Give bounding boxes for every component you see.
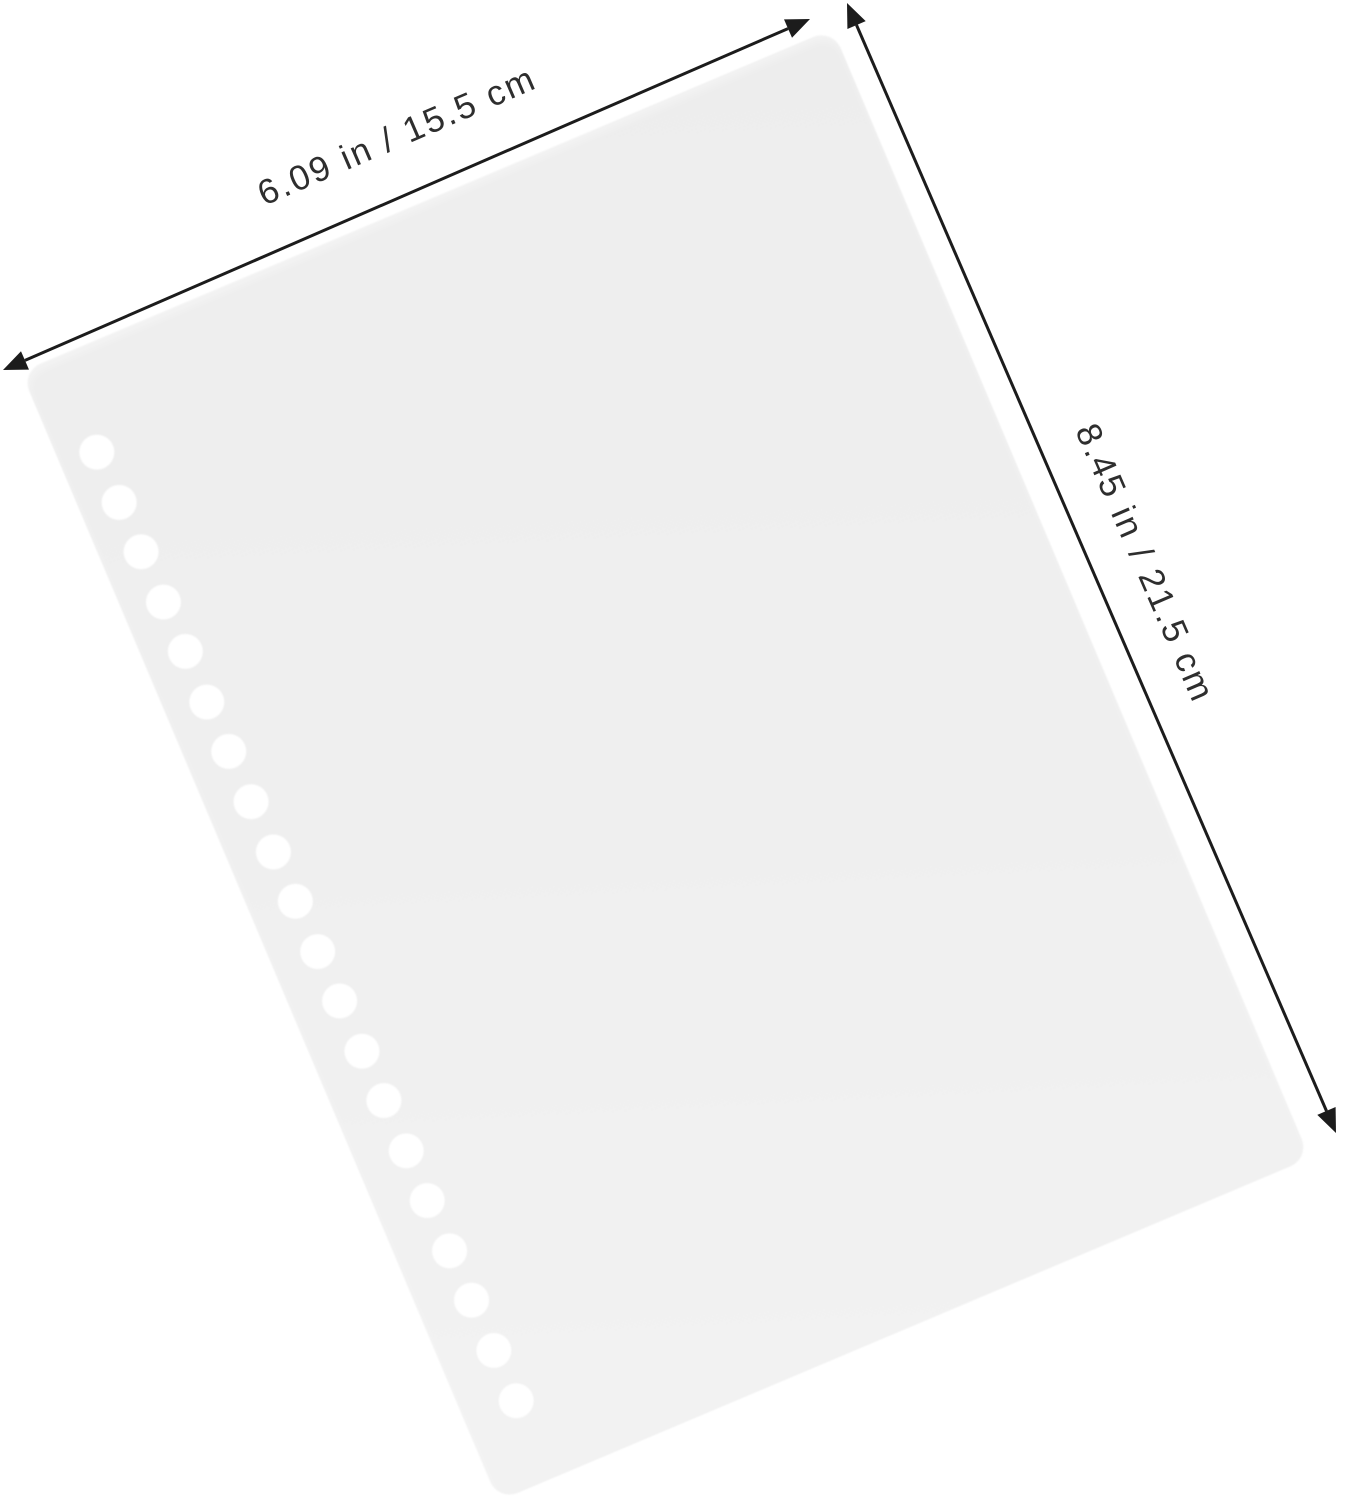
svg-text:6.09 in / 15.5 cm: 6.09 in / 15.5 cm [252,59,542,214]
